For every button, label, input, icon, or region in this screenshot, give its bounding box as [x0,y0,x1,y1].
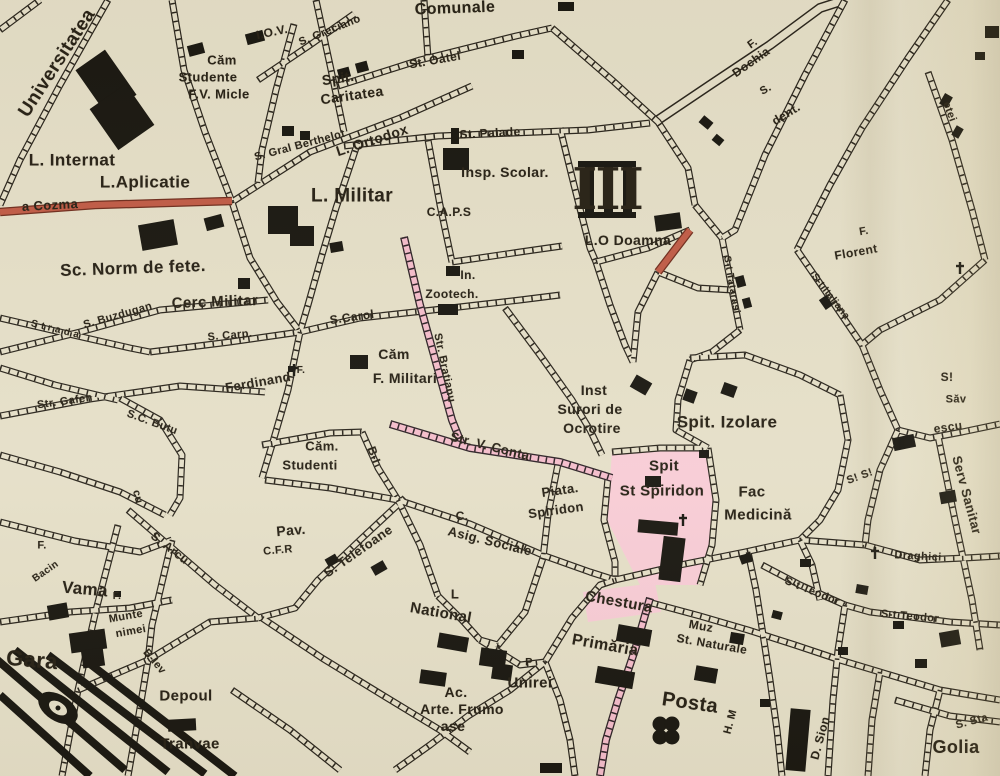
map-artwork [0,0,1000,776]
map-canvas[interactable]: UniversitateaI.O.V.CămStudenteF.V. Micle… [0,0,1000,776]
